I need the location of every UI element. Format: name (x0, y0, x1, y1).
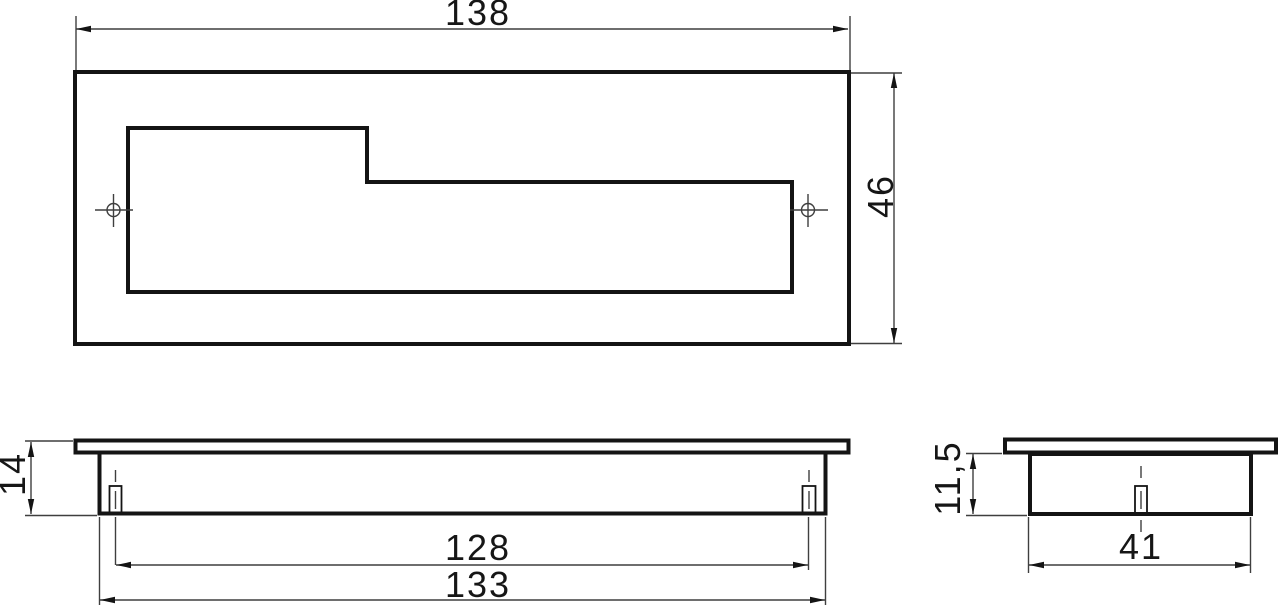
arrowhead-top (891, 73, 897, 88)
dimension-label-front-height: 14 (0, 452, 33, 496)
arrowhead-top (970, 454, 976, 469)
screw-boss-left (110, 470, 122, 514)
dimension-top-height: 46 (851, 73, 902, 344)
dimension-label-body-width: 133 (445, 564, 511, 605)
top-view-outer-outline (75, 72, 849, 344)
mounting-hole-right (790, 194, 828, 227)
arrowhead-bottom (891, 328, 897, 343)
arrowhead-left (76, 26, 91, 32)
dimension-label-top-height: 46 (860, 174, 901, 218)
top-view: 138 46 (75, 0, 902, 344)
arrowhead-left (100, 597, 115, 603)
dimension-top-width: 138 (76, 0, 850, 70)
arrowhead-right (833, 26, 848, 32)
dimension-label-top-width: 138 (445, 0, 511, 33)
arrowhead-right (1235, 562, 1250, 568)
screw-boss-right (803, 470, 816, 514)
dimension-hole-spacing: 128 (116, 517, 809, 570)
front-view: 14 128 133 (0, 441, 849, 606)
arrowhead-right (793, 562, 808, 568)
side-view-flange (1005, 440, 1276, 453)
arrowhead-bottom (28, 499, 34, 514)
arrowhead-left (116, 562, 131, 568)
dimension-label-side-height: 11,5 (927, 440, 968, 515)
arrowhead-right (810, 597, 825, 603)
arrowhead-left (1029, 562, 1044, 568)
technical-drawing-canvas: 138 46 (0, 0, 1280, 606)
dimension-label-side-width: 41 (1119, 526, 1163, 567)
side-view: 11,5 41 (927, 440, 1276, 574)
screw-boss-side (1135, 466, 1147, 532)
front-view-flange (76, 441, 849, 453)
front-view-body (100, 453, 826, 514)
top-view-recess-outline (128, 128, 792, 292)
dimension-side-width: 41 (1029, 517, 1251, 573)
drawing-page: 138 46 (0, 0, 1280, 606)
dimension-label-hole-spacing: 128 (445, 527, 511, 568)
arrowhead-bottom (970, 499, 976, 514)
